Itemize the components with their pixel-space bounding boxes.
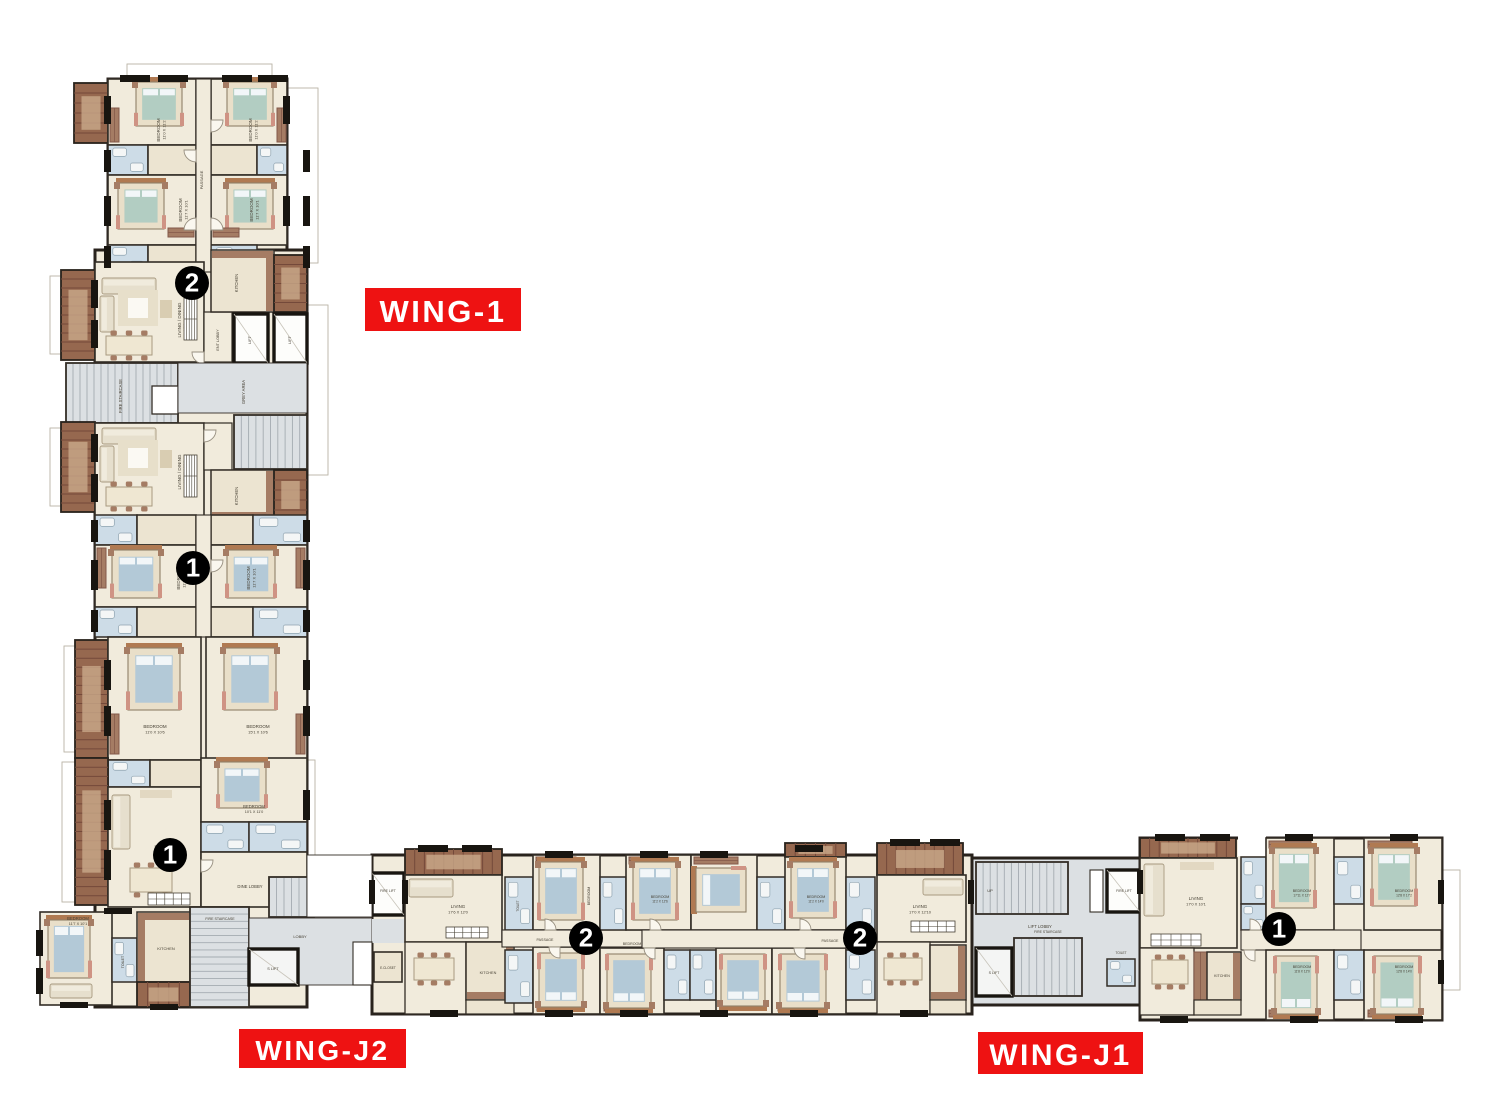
svg-text:11'2 X 12'6: 11'2 X 12'6 xyxy=(652,900,668,904)
svg-text:12'8 X 17'2: 12'8 X 17'2 xyxy=(1396,894,1412,898)
svg-text:BEDROOM: BEDROOM xyxy=(156,118,161,142)
svg-text:2: 2 xyxy=(185,268,199,298)
svg-text:KITCHEN: KITCHEN xyxy=(1214,974,1230,978)
svg-text:LIVING: LIVING xyxy=(1189,896,1204,901)
svg-text:ENT LOBBY: ENT LOBBY xyxy=(216,329,220,351)
svg-text:11'0 X 11'2: 11'0 X 11'2 xyxy=(254,120,259,140)
svg-text:PASSAGE: PASSAGE xyxy=(537,938,555,942)
svg-text:PASSAGE: PASSAGE xyxy=(199,170,204,189)
svg-text:LIVING: LIVING xyxy=(451,904,466,909)
svg-text:BEDROOM: BEDROOM xyxy=(178,198,183,222)
svg-text:S LIFT: S LIFT xyxy=(267,967,279,971)
svg-text:2: 2 xyxy=(853,923,867,953)
svg-text:FIRE LIFT: FIRE LIFT xyxy=(1116,889,1132,893)
svg-text:BEDROOM: BEDROOM xyxy=(246,724,270,729)
svg-text:DINE LOBBY: DINE LOBBY xyxy=(237,884,262,889)
svg-text:KITCHEN: KITCHEN xyxy=(480,971,497,975)
svg-text:11'8 X 12'0: 11'8 X 12'0 xyxy=(1294,970,1310,974)
svg-text:TOILET: TOILET xyxy=(121,955,125,968)
svg-text:LIFT: LIFT xyxy=(288,335,292,343)
svg-text:17'11 X 12'7: 17'11 X 12'7 xyxy=(1293,894,1311,898)
svg-text:LIFT LOBBY: LIFT LOBBY xyxy=(1028,924,1052,929)
svg-text:KITCHEN: KITCHEN xyxy=(234,274,239,292)
svg-text:FIRE STAIRCASE: FIRE STAIRCASE xyxy=(118,379,123,413)
svg-text:TOILET: TOILET xyxy=(1115,951,1126,955)
svg-text:10'1 X 11'0: 10'1 X 11'0 xyxy=(245,810,263,814)
svg-text:BEDROOM: BEDROOM xyxy=(243,804,265,809)
svg-text:UP: UP xyxy=(987,888,993,893)
svg-text:BEDROOM: BEDROOM xyxy=(246,566,251,590)
svg-text:KITCHEN: KITCHEN xyxy=(157,946,175,951)
svg-text:BEDROOM: BEDROOM xyxy=(651,895,670,899)
svg-text:1: 1 xyxy=(163,840,177,870)
svg-text:FIRE STAIRCASE: FIRE STAIRCASE xyxy=(1034,930,1062,934)
svg-text:LIVING / DINING: LIVING / DINING xyxy=(177,454,182,489)
svg-text:TOILET: TOILET xyxy=(516,900,520,911)
svg-text:BEDROOM: BEDROOM xyxy=(67,916,89,921)
svg-text:BEDROOM: BEDROOM xyxy=(587,887,591,906)
svg-text:BEDROOM: BEDROOM xyxy=(249,198,254,222)
svg-text:BEDROOM: BEDROOM xyxy=(1395,965,1414,969)
svg-text:BEDROOM: BEDROOM xyxy=(143,724,167,729)
svg-text:LIVING: LIVING xyxy=(913,904,928,909)
svg-text:11'2 X 14'0: 11'2 X 14'0 xyxy=(808,900,824,904)
svg-text:17'0 X 12'10: 17'0 X 12'10 xyxy=(909,909,932,914)
svg-text:2: 2 xyxy=(579,923,593,953)
svg-text:E.CLOSET: E.CLOSET xyxy=(380,966,396,970)
svg-text:WING-J1: WING-J1 xyxy=(989,1039,1132,1072)
svg-text:BEDROOM: BEDROOM xyxy=(623,942,642,946)
svg-text:BEDROOM: BEDROOM xyxy=(1293,965,1312,969)
svg-text:BEDROOM: BEDROOM xyxy=(1395,889,1414,893)
svg-text:FIRE STAIRCASE: FIRE STAIRCASE xyxy=(205,917,235,921)
svg-text:12'8 X 14'0: 12'8 X 14'0 xyxy=(1396,970,1412,974)
svg-text:1: 1 xyxy=(186,553,200,583)
svg-text:LOBBY: LOBBY xyxy=(293,934,307,939)
svg-text:17'6 X 12'0: 17'6 X 12'0 xyxy=(448,909,469,914)
svg-text:BEDROOM: BEDROOM xyxy=(807,895,826,899)
svg-text:11'0 X 10'6: 11'0 X 10'6 xyxy=(145,730,165,735)
svg-text:11'0 X 11'2: 11'0 X 11'2 xyxy=(162,120,167,140)
svg-text:WING-1: WING-1 xyxy=(380,294,507,329)
svg-text:BEDROOM: BEDROOM xyxy=(1293,889,1312,893)
svg-text:KITCHEN: KITCHEN xyxy=(234,487,239,505)
svg-text:S LIFT: S LIFT xyxy=(989,971,1001,975)
svg-text:LIFT: LIFT xyxy=(248,335,252,343)
svg-text:11'7 X 10'1: 11'7 X 10'1 xyxy=(184,199,189,219)
svg-text:GREY AREA: GREY AREA xyxy=(241,380,246,404)
svg-text:11'7 X 10'1: 11'7 X 10'1 xyxy=(252,567,257,587)
svg-text:WING-J2: WING-J2 xyxy=(255,1035,389,1066)
svg-text:BEDROOM: BEDROOM xyxy=(248,118,253,142)
svg-text:17'0 X 10'1: 17'0 X 10'1 xyxy=(1186,901,1207,906)
svg-text:FIRE LIFT: FIRE LIFT xyxy=(380,889,396,893)
svg-text:PASSAGE: PASSAGE xyxy=(822,939,840,943)
svg-text:1: 1 xyxy=(1272,914,1286,944)
svg-text:11'7 X 10'1: 11'7 X 10'1 xyxy=(69,922,87,926)
svg-text:11'7 X 10'1: 11'7 X 10'1 xyxy=(255,199,260,219)
svg-text:LIVING / DINING: LIVING / DINING xyxy=(177,302,182,337)
svg-text:15'1 X 10'6: 15'1 X 10'6 xyxy=(248,730,269,735)
